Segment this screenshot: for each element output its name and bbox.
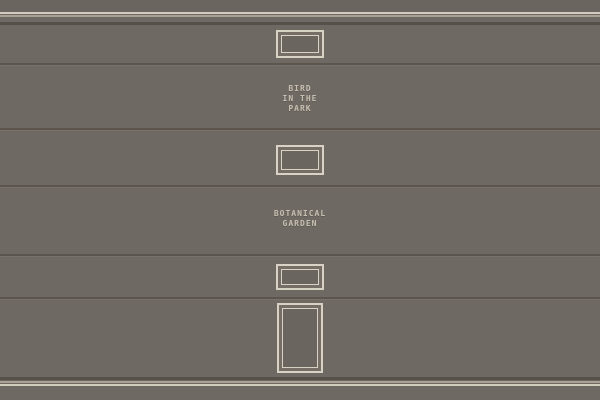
- picture-rail-stripe: [0, 22, 600, 25]
- picture-frame-tall[interactable]: [277, 303, 323, 373]
- picture-frame-small-bottom[interactable]: [276, 264, 324, 290]
- crown-molding-stripe-bright: [0, 12, 600, 14]
- panel-seam: [0, 297, 600, 300]
- picture-frame-interior: [281, 150, 319, 170]
- baseboard-stripe-muted: [0, 381, 600, 383]
- exhibit-label-botanical-garden: BOTANICAL GARDEN: [250, 209, 350, 229]
- crown-molding-stripe-muted: [0, 15, 600, 17]
- panel-seam: [0, 185, 600, 188]
- wall-background: BIRD IN THE PARK BOTANICAL GARDEN: [0, 0, 600, 400]
- exhibit-label-bird-in-the-park: BIRD IN THE PARK: [250, 84, 350, 114]
- baseboard-stripe-dark: [0, 377, 600, 380]
- panel-seam: [0, 128, 600, 131]
- wall-top-band: [0, 0, 600, 12]
- baseboard-stripe-bright: [0, 384, 600, 386]
- picture-frame-interior: [281, 269, 319, 285]
- picture-frame-interior: [282, 308, 318, 368]
- panel-seam: [0, 63, 600, 66]
- panel-seam: [0, 254, 600, 257]
- picture-frame-interior: [281, 35, 319, 53]
- picture-frame-small-top[interactable]: [276, 30, 324, 58]
- picture-frame-small-middle[interactable]: [276, 145, 324, 175]
